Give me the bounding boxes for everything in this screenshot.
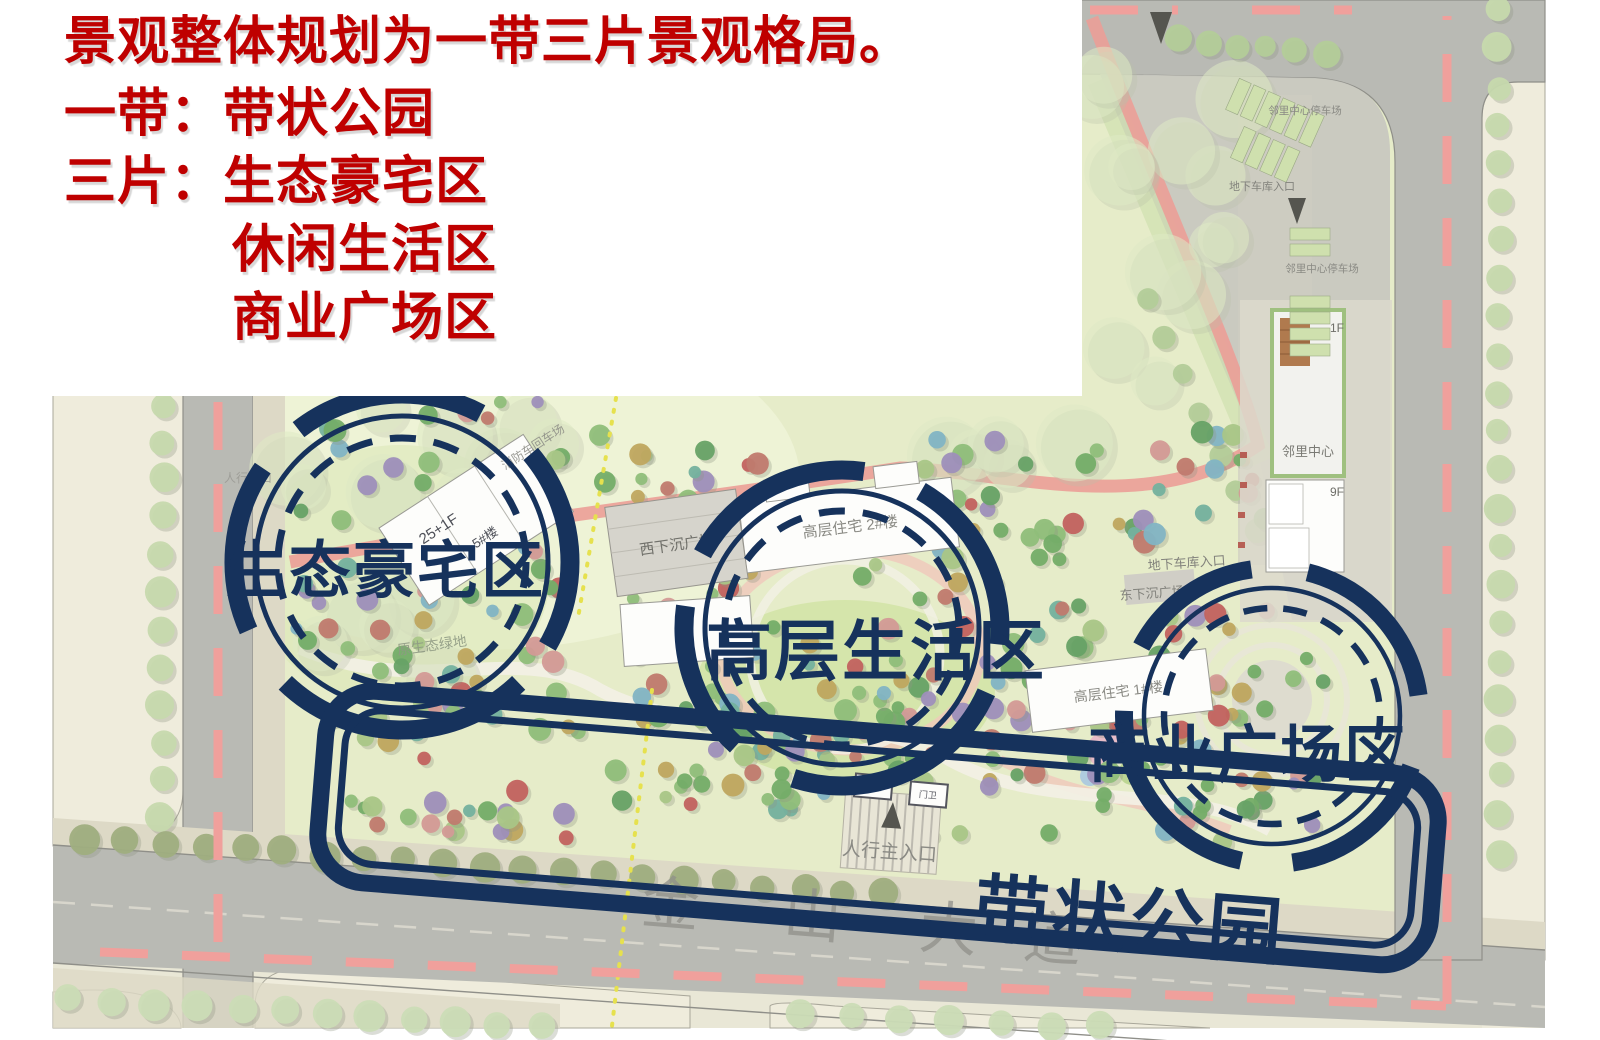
west-sunken-plaza: 西下沉广场 (605, 489, 748, 596)
garage-entrance-north-label: 地下车库入口 (1229, 179, 1295, 193)
guard-2-label: 门卫 (919, 788, 938, 801)
parking-label-1: 邻里中心停车场 (1268, 104, 1342, 117)
neighborhood-center-label: 邻里中心 (1282, 444, 1334, 459)
title-block: 景观整体规划为一带三片景观格局。 一带：带状公园 三片：生态豪宅区 休闲生活区 … (0, 0, 1082, 396)
title-line-5: 商业广场区 (232, 292, 497, 344)
guard-house-2: 门卫 (909, 781, 948, 807)
title-line-2: 一带：带状公园 (64, 88, 435, 140)
zone-middle-label: 高层生活区 (706, 614, 1046, 688)
title-line-1: 景观整体规划为一带三片景观格局。 (64, 16, 912, 68)
title-line-3: 三片：生态豪宅区 (64, 156, 488, 208)
parking-label-2: 邻里中心停车场 (1285, 262, 1359, 275)
zone-left-label: 生态豪宅区 (225, 537, 545, 606)
floor-9f-label: 9F (1330, 485, 1344, 499)
title-line-4: 休闲生活区 (232, 224, 497, 276)
slide: 25+1F 5#楼 消防车回车场 高层住宅 2#楼 高层住宅 1#楼 1F 邻里… (0, 0, 1600, 1040)
floor-1f-label: 1F (1330, 321, 1344, 335)
